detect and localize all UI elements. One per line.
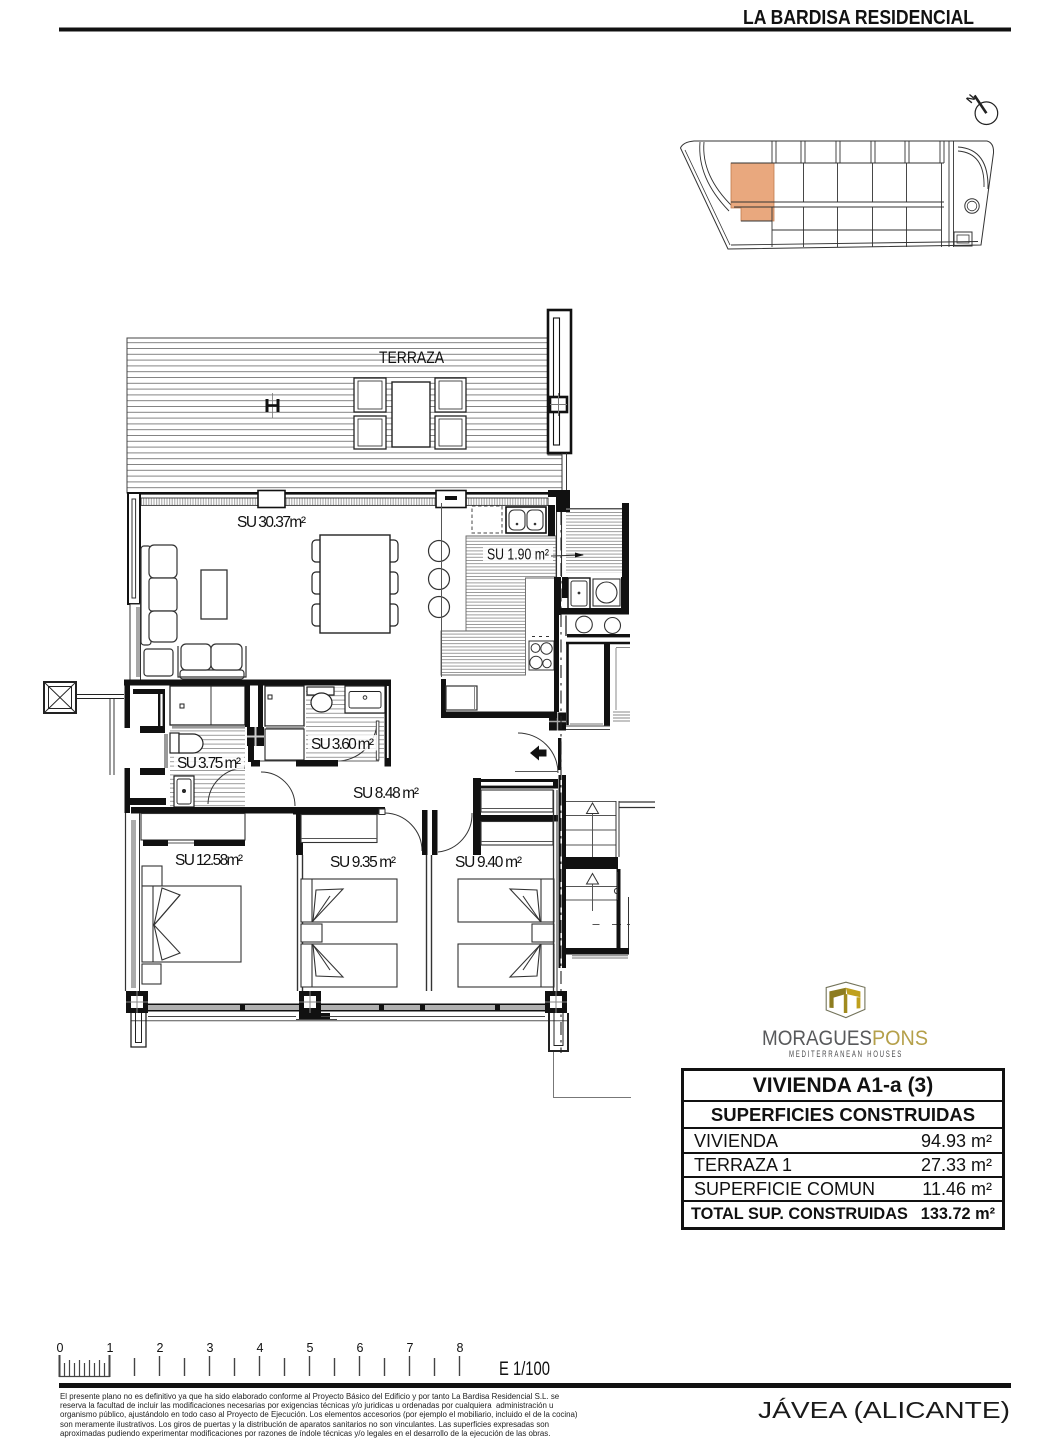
svg-text:4: 4 — [257, 1341, 264, 1355]
svg-text:SU 3.75 m²: SU 3.75 m² — [177, 755, 241, 772]
svg-text:MORAGUES: MORAGUES — [762, 1026, 872, 1050]
svg-text:TERRAZA: TERRAZA — [379, 348, 445, 367]
svg-text:8: 8 — [457, 1341, 464, 1355]
svg-text:LA BARDISA RESIDENCIAL: LA BARDISA RESIDENCIAL — [743, 6, 974, 29]
svg-text:SU 12.58m²: SU 12.58m² — [175, 852, 243, 869]
svg-text:SU 9.35 m²: SU 9.35 m² — [330, 854, 396, 871]
svg-text:JÁVEA (ALICANTE): JÁVEA (ALICANTE) — [758, 1397, 1010, 1423]
svg-text:SU 9.40 m²: SU 9.40 m² — [455, 854, 522, 871]
svg-text:SU 30.37m²: SU 30.37m² — [237, 514, 306, 531]
svg-text:2: 2 — [157, 1341, 164, 1355]
svg-text:1: 1 — [107, 1341, 114, 1355]
svg-text:N: N — [964, 92, 978, 106]
svg-text:0: 0 — [57, 1341, 64, 1355]
svg-text:7: 7 — [407, 1341, 414, 1355]
svg-text:MEDITERRANEAN HOUSES: MEDITERRANEAN HOUSES — [789, 1049, 903, 1059]
svg-text:6: 6 — [357, 1341, 364, 1355]
svg-text:5: 5 — [307, 1341, 314, 1355]
svg-text:SU 3.60 m²: SU 3.60 m² — [311, 736, 374, 753]
svg-text:PONS: PONS — [872, 1026, 928, 1050]
svg-text:SU 1.90 m²: SU 1.90 m² — [487, 547, 549, 564]
svg-text:E 1/100: E 1/100 — [499, 1358, 550, 1380]
svg-text:SU 8.48 m²: SU 8.48 m² — [353, 785, 419, 802]
svg-text:3: 3 — [207, 1341, 214, 1355]
